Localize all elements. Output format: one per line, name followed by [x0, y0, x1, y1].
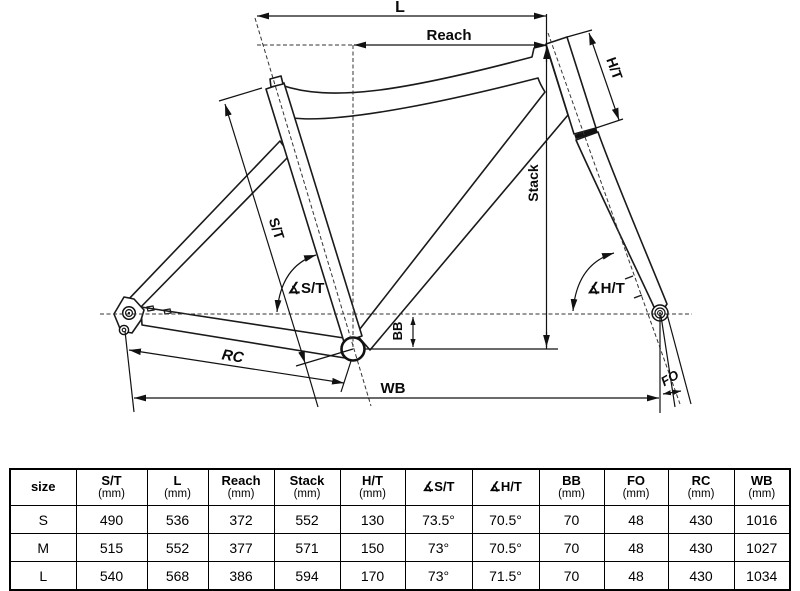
cell: 170	[340, 562, 405, 591]
cell: 1034	[734, 562, 790, 591]
col-header-l: L(mm)	[147, 469, 208, 506]
seat-stay	[126, 141, 290, 313]
header-label: Stack	[275, 474, 340, 488]
col-header-bb: BB(mm)	[539, 469, 604, 506]
cell: 377	[208, 534, 274, 562]
fork-mount-icon	[634, 295, 642, 298]
cell: 48	[604, 534, 668, 562]
label-stack: Stack	[525, 164, 541, 202]
header-unit: (mm)	[209, 488, 274, 501]
fork-mount-icon	[625, 276, 633, 279]
cell: 70.5°	[472, 506, 539, 534]
table-row-size-m: M 515 552 377 571 150 73° 70.5° 70 48 43…	[10, 534, 790, 562]
frame-geometry-diagram: L Reach Stack S/T H/T BB RC WB FO ∡S/T ∡…	[0, 0, 800, 460]
header-label: WB	[735, 474, 790, 488]
cell: M	[10, 534, 76, 562]
label-rc: RC	[221, 346, 246, 366]
col-header-stack: Stack(mm)	[274, 469, 340, 506]
label-angle-ht: ∡H/T	[587, 280, 625, 297]
header-unit: (mm)	[148, 488, 208, 501]
cell: 48	[604, 562, 668, 591]
header-unit: (mm)	[275, 488, 340, 501]
label-wb: WB	[381, 380, 406, 397]
col-header-reach: Reach(mm)	[208, 469, 274, 506]
header-label: S/T	[77, 474, 147, 488]
col-header-ht: H/T(mm)	[340, 469, 405, 506]
cell: 1027	[734, 534, 790, 562]
header-unit: (mm)	[735, 488, 790, 501]
header-label: L	[148, 474, 208, 488]
reference-lines	[100, 18, 692, 406]
cell: 515	[76, 534, 147, 562]
label-l: L	[395, 0, 405, 16]
col-header-size: size	[10, 469, 76, 506]
header-label: ∡S/T	[406, 480, 472, 494]
header-row: size S/T(mm) L(mm) Reach(mm) Stack(mm) H…	[10, 469, 790, 506]
header-unit: (mm)	[669, 488, 734, 501]
cell: 540	[76, 562, 147, 591]
label-st: S/T	[266, 216, 288, 242]
cell: 73.5°	[405, 506, 472, 534]
cell: 594	[274, 562, 340, 591]
geometry-table-wrap: size S/T(mm) L(mm) Reach(mm) Stack(mm) H…	[9, 468, 800, 591]
header-unit: (mm)	[341, 488, 405, 501]
cell: 130	[340, 506, 405, 534]
cell: 571	[274, 534, 340, 562]
cell: 1016	[734, 506, 790, 534]
cell: 430	[668, 506, 734, 534]
cell: L	[10, 562, 76, 591]
label-ht: H/T	[603, 55, 626, 82]
cell: 70	[539, 534, 604, 562]
header-label: Reach	[209, 474, 274, 488]
cell: 430	[668, 562, 734, 591]
cell: 70	[539, 562, 604, 591]
fo-dimension	[663, 391, 681, 394]
header-unit: (mm)	[77, 488, 147, 501]
cell: 430	[668, 534, 734, 562]
label-reach: Reach	[426, 27, 471, 44]
cell: 150	[340, 534, 405, 562]
col-header-fo: FO(mm)	[604, 469, 668, 506]
cell: 48	[604, 506, 668, 534]
header-label: H/T	[341, 474, 405, 488]
header-unit: (mm)	[605, 488, 668, 501]
cell: 490	[76, 506, 147, 534]
header-label: RC	[669, 474, 734, 488]
cell: 536	[147, 506, 208, 534]
label-fo: FO	[658, 367, 681, 389]
col-header-st: S/T(mm)	[76, 469, 147, 506]
header-label: ∡H/T	[473, 480, 539, 494]
cell: 568	[147, 562, 208, 591]
cell: 70.5°	[472, 534, 539, 562]
header-label: FO	[605, 474, 668, 488]
cell: 552	[274, 506, 340, 534]
col-header-rc: RC(mm)	[668, 469, 734, 506]
cell: 73°	[405, 534, 472, 562]
cell: 386	[208, 562, 274, 591]
cell: 70	[539, 506, 604, 534]
cell: S	[10, 506, 76, 534]
col-header-wb: WB(mm)	[734, 469, 790, 506]
table-row-size-l: L 540 568 386 594 170 73° 71.5° 70 48 43…	[10, 562, 790, 591]
col-header-angle-ht: ∡H/T	[472, 469, 539, 506]
table-row-size-s: S 490 536 372 552 130 73.5° 70.5° 70 48 …	[10, 506, 790, 534]
col-header-angle-st: ∡S/T	[405, 469, 472, 506]
label-bb: BB	[390, 322, 405, 341]
cell: 552	[147, 534, 208, 562]
cell: 73°	[405, 562, 472, 591]
header-label: BB	[540, 474, 604, 488]
geometry-table: size S/T(mm) L(mm) Reach(mm) Stack(mm) H…	[9, 468, 791, 591]
header-unit: (mm)	[540, 488, 604, 501]
header-label: size	[11, 480, 76, 494]
label-angle-st: ∡S/T	[288, 280, 325, 297]
cell: 71.5°	[472, 562, 539, 591]
cell: 372	[208, 506, 274, 534]
